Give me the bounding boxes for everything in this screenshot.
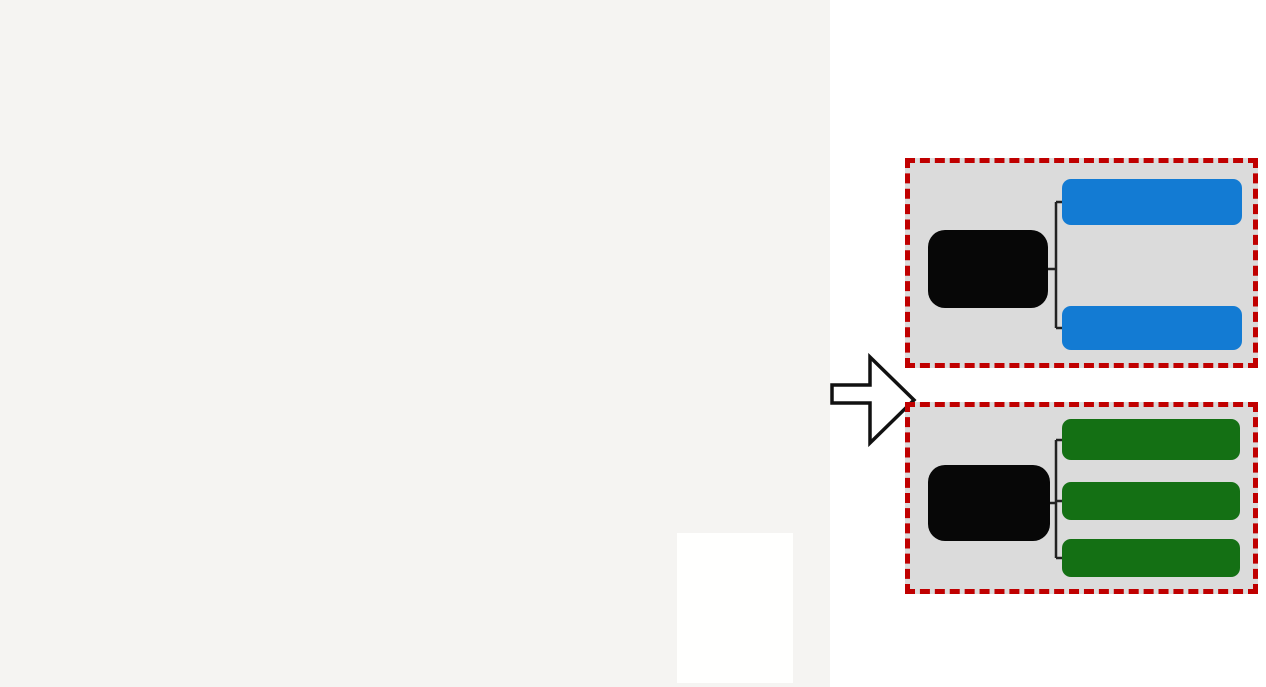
node-traditional-street-block — [1062, 179, 1242, 225]
traditional-space-group-box — [905, 158, 1258, 368]
traditional-space-node — [928, 230, 1048, 308]
modern-space-node — [928, 465, 1050, 541]
node-large-volume-building — [1062, 539, 1240, 577]
status-map-panel — [0, 0, 830, 687]
node-row-arrangement — [1062, 482, 1240, 520]
node-modern-settlement — [1062, 419, 1240, 460]
modern-space-group-box — [905, 402, 1258, 594]
node-traditional-fishbone — [1062, 306, 1242, 350]
slide-root — [0, 0, 1266, 687]
map-legend — [677, 533, 793, 683]
